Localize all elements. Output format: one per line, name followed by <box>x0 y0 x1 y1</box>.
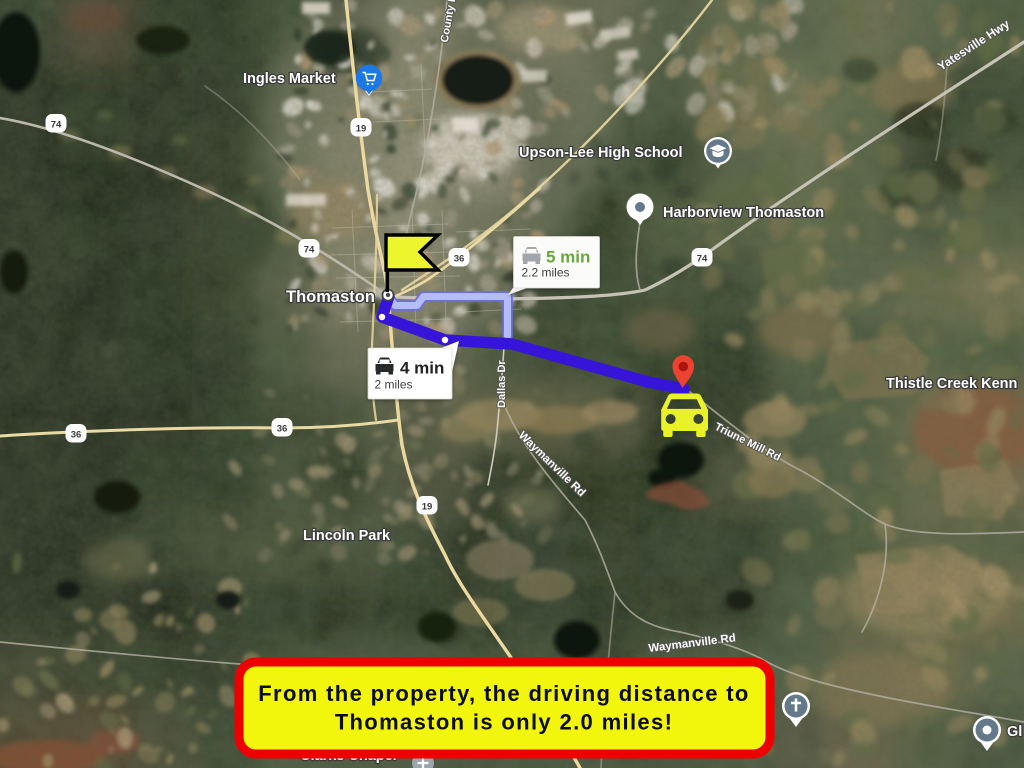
svg-text:19: 19 <box>422 502 433 513</box>
svg-text:4 min: 4 min <box>400 359 444 378</box>
svg-text:Thistle Creek Kenn: Thistle Creek Kenn <box>886 376 1017 392</box>
svg-text:2.2 miles: 2.2 miles <box>522 266 570 280</box>
svg-text:Gl: Gl <box>1007 724 1022 740</box>
svg-text:From the property, the driving: From the property, the driving distance … <box>258 681 749 706</box>
svg-text:Thomaston is only 2.0 miles!: Thomaston is only 2.0 miles! <box>335 710 674 735</box>
svg-text:74: 74 <box>51 120 62 131</box>
svg-text:36: 36 <box>454 254 465 265</box>
svg-text:Thomaston: Thomaston <box>286 288 375 306</box>
svg-text:19: 19 <box>356 124 367 135</box>
svg-text:74: 74 <box>304 245 315 256</box>
svg-text:36: 36 <box>71 430 82 441</box>
svg-text:Ingles Market: Ingles Market <box>243 71 336 87</box>
svg-text:74: 74 <box>697 254 708 265</box>
svg-text:5 min: 5 min <box>546 248 590 267</box>
svg-text:36: 36 <box>277 424 288 435</box>
svg-text:Upson-Lee High School: Upson-Lee High School <box>519 145 683 161</box>
svg-text:2 miles: 2 miles <box>375 378 413 392</box>
svg-text:Dallas Dr: Dallas Dr <box>496 360 508 408</box>
svg-text:Harborview Thomaston: Harborview Thomaston <box>663 205 824 221</box>
svg-text:Lincoln Park: Lincoln Park <box>303 528 391 544</box>
